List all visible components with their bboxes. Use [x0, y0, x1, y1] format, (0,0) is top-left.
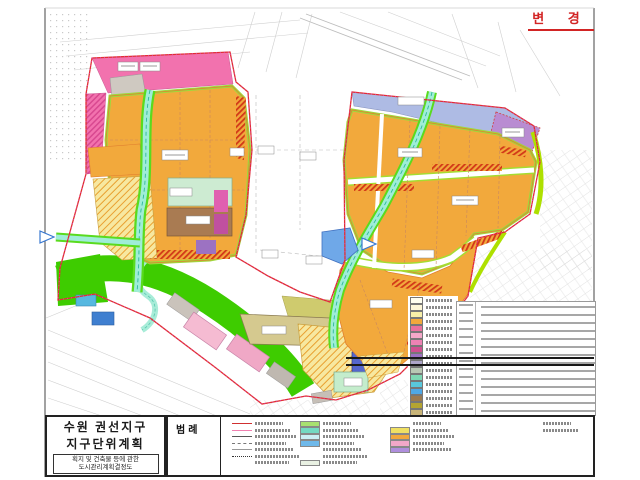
legend-row	[520, 421, 578, 427]
legend-patch-swatch	[300, 460, 320, 467]
zoning-legend-swatch	[410, 395, 423, 402]
legend-label-smudge	[413, 442, 444, 445]
drawing-title-line2: 지구단위계획	[47, 437, 164, 451]
zoning-legend-swatch	[410, 374, 423, 381]
zoning-legend-row	[408, 381, 458, 388]
legend-row	[232, 454, 300, 460]
legend-row	[300, 428, 368, 434]
legend-dash-swatch	[232, 443, 252, 444]
zoning-legend-row	[408, 304, 458, 311]
zoning-legend-label-smudge	[426, 397, 452, 400]
drawing-title-line1: 수원 권선지구	[47, 420, 164, 434]
legend-patch-swatch	[390, 447, 410, 454]
legend-line-swatch	[232, 423, 252, 424]
legend-symbol	[300, 460, 320, 467]
legend-label-smudge	[323, 448, 361, 451]
legend-group-lines	[232, 421, 300, 467]
zoning-legend-label-smudge	[426, 327, 452, 330]
legend-label-smudge	[323, 461, 357, 464]
zoning-legend-row	[408, 388, 458, 395]
zoning-legend-row	[408, 402, 458, 409]
drawing-subtitle-line2: 도시관리계획결정도	[54, 464, 158, 472]
legend-label-smudge	[413, 448, 451, 451]
notes-divider-line	[346, 357, 594, 359]
zoning-legend-label-smudge	[426, 299, 452, 302]
zoning-legend-swatch	[410, 339, 423, 346]
drawing-subtitle-line1: 획지 및 건축물 등에 관한	[54, 456, 158, 464]
legend-row	[390, 447, 455, 453]
legend-label-smudge	[323, 429, 358, 432]
legend-row	[390, 428, 455, 434]
zoning-legend-row	[408, 318, 458, 325]
zoning-legend-swatch	[410, 381, 423, 388]
zoning-legend-row	[408, 332, 458, 339]
zoning-legend-row	[408, 346, 458, 353]
legend-label-smudge	[255, 461, 289, 464]
zoning-legend-row	[408, 367, 458, 374]
zoning-legend-swatch	[410, 304, 423, 311]
legend-label-smudge	[413, 435, 455, 438]
zoning-legend-swatch	[410, 388, 423, 395]
zoning-legend-row	[408, 311, 458, 318]
zoning-legend-label-smudge	[426, 376, 452, 379]
legend-row	[232, 441, 300, 447]
legend-label-smudge	[543, 422, 571, 425]
legend-line-swatch	[232, 436, 252, 437]
legend-symbol	[232, 456, 252, 457]
legend-row	[300, 441, 368, 447]
legend-label-smudge	[413, 422, 441, 425]
legend-label-smudge	[323, 442, 354, 445]
legend-row	[300, 421, 368, 427]
legend-symbol	[232, 423, 252, 424]
legend-row	[232, 434, 300, 440]
zoning-legend-label-smudge	[426, 313, 452, 316]
legend-row	[300, 454, 368, 460]
legend-label-smudge	[255, 442, 286, 445]
zoning-legend-label-smudge	[426, 348, 452, 351]
zoning-legend-swatch	[410, 367, 423, 374]
flow-arrow-west-icon	[40, 231, 54, 243]
legend-dashdot-swatch	[232, 456, 252, 457]
legend-patch-swatch	[300, 440, 320, 447]
zoning-legend-row	[408, 325, 458, 332]
legend-strip: 범례	[166, 415, 595, 477]
zoning-color-legend	[408, 296, 458, 424]
zoning-legend-label-smudge	[426, 411, 452, 414]
zoning-legend-row	[408, 297, 458, 304]
legend-group-zones	[390, 421, 455, 454]
legend-label-smudge	[413, 429, 448, 432]
legend-line-swatch	[232, 430, 252, 431]
legend-label-smudge	[543, 429, 578, 432]
zoning-legend-label-smudge	[426, 404, 452, 407]
legend-label-smudge	[255, 422, 283, 425]
zoning-legend-label-smudge	[426, 341, 452, 344]
legend-symbol	[232, 449, 252, 450]
notes-divider-line	[346, 364, 594, 366]
zoning-legend-swatch	[410, 297, 423, 304]
legend-label-smudge	[255, 448, 293, 451]
legend-row	[232, 421, 300, 427]
legend-row	[390, 441, 455, 447]
plan-sheet: 변 경 ↑ 수원 권선지구 지구단위계획 획지 및 건축물 등에 관한 도시관리…	[0, 0, 640, 480]
zoning-legend-label-smudge	[426, 334, 452, 337]
legend-symbol	[232, 443, 252, 444]
legend-symbol	[300, 440, 320, 447]
zoning-legend-swatch	[410, 311, 423, 318]
zoning-legend-swatch	[410, 332, 423, 339]
legend-label-smudge	[323, 422, 351, 425]
legend-symbol	[232, 436, 252, 437]
legend-row	[232, 460, 300, 466]
legend-label-smudge	[255, 455, 300, 458]
title-block: 수원 권선지구 지구단위계획 획지 및 건축물 등에 관한 도시관리계획결정도	[45, 415, 166, 477]
legend-title: 범례	[176, 421, 220, 436]
legend-row	[300, 434, 368, 440]
legend-symbol	[390, 447, 410, 454]
legend-group-areas	[300, 421, 368, 467]
legend-label-smudge	[323, 435, 365, 438]
drawing-subtitle: 획지 및 건축물 등에 관한 도시관리계획결정도	[53, 454, 159, 474]
zoning-legend-swatch	[410, 318, 423, 325]
zoning-legend-row	[408, 339, 458, 346]
change-stamp: 변 경	[528, 8, 594, 31]
legend-row	[300, 460, 368, 466]
legend-row	[300, 447, 368, 453]
legend-row	[390, 434, 455, 440]
legend-group-notes	[520, 421, 578, 434]
zoning-legend-swatch	[410, 346, 423, 353]
legend-row	[390, 421, 455, 427]
zoning-legend-label-smudge	[426, 383, 452, 386]
zoning-legend-row	[408, 395, 458, 402]
zoning-legend-label-smudge	[426, 306, 452, 309]
zoning-legend-swatch	[410, 402, 423, 409]
legend-row	[232, 428, 300, 434]
legend-label-smudge	[323, 455, 368, 458]
legend-row	[232, 447, 300, 453]
legend-label-smudge	[255, 435, 297, 438]
zoning-legend-label-smudge	[426, 369, 452, 372]
zoning-legend-label-smudge	[426, 390, 452, 393]
zoning-legend-swatch	[410, 325, 423, 332]
legend-label-smudge	[255, 429, 290, 432]
zoning-legend-row	[408, 374, 458, 381]
legend-title-cell: 범례	[168, 417, 221, 475]
zoning-legend-label-smudge	[426, 320, 452, 323]
legend-line-swatch	[232, 449, 252, 450]
legend-symbol	[232, 430, 252, 431]
legend-row	[520, 428, 578, 434]
